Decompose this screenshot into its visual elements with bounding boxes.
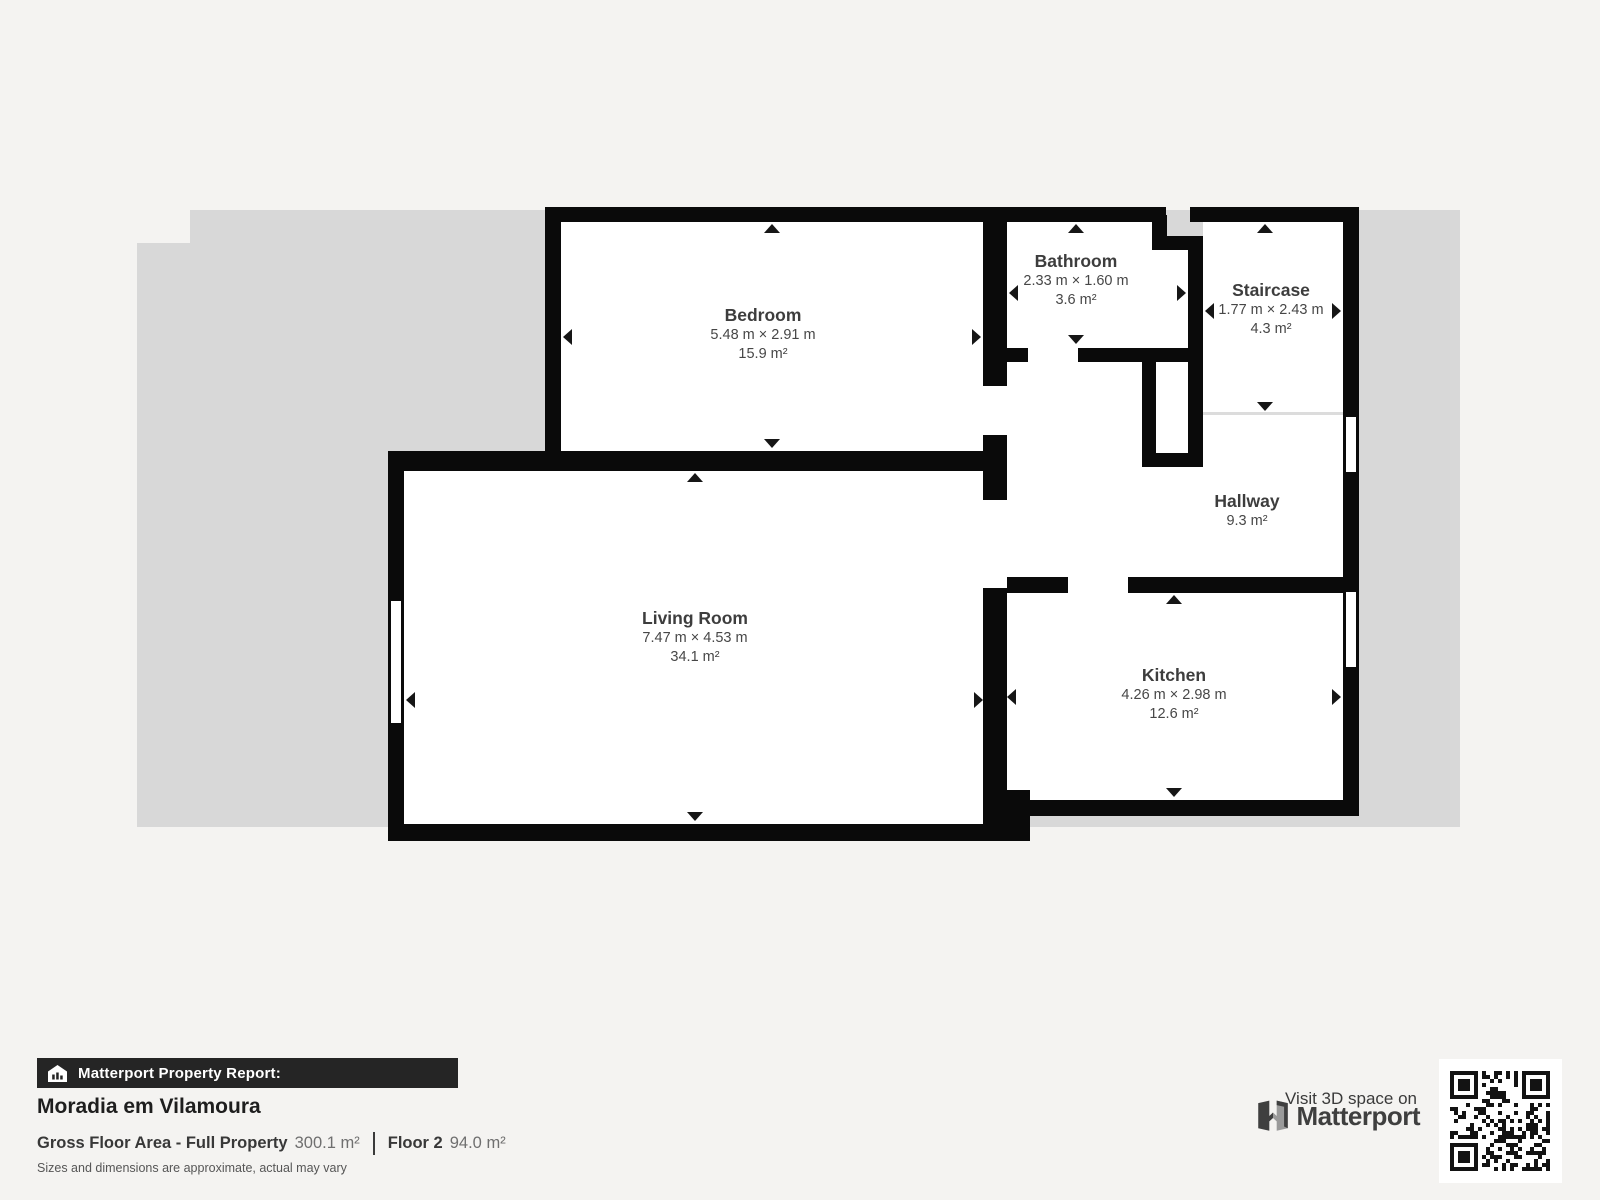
dimension-arrow-down-icon xyxy=(1068,335,1084,344)
room-name: Kitchen xyxy=(1121,665,1226,686)
dimension-arrow-left-icon xyxy=(406,692,415,708)
wall-kitchen-top xyxy=(983,577,1359,593)
room-hallway xyxy=(1005,362,1343,577)
room-dimensions: 7.47 m × 4.53 m xyxy=(642,629,748,648)
wall-bedroom-left xyxy=(545,207,561,471)
room-name: Staircase xyxy=(1218,280,1323,301)
dimension-arrow-down-icon xyxy=(1257,402,1273,411)
dimension-arrow-right-icon xyxy=(1332,689,1341,705)
door-bedroom xyxy=(983,386,1007,435)
dimension-arrow-right-icon xyxy=(972,329,981,345)
room-name: Bathroom xyxy=(1023,251,1128,272)
gross-floor-area-label: Gross Floor Area - Full Property xyxy=(37,1134,288,1153)
wall-living-bottom xyxy=(388,824,1030,841)
dimension-arrow-left-icon xyxy=(563,329,572,345)
label-kitchen: Kitchen 4.26 m × 2.98 m 12.6 m² xyxy=(1121,665,1226,724)
room-name: Bedroom xyxy=(710,305,815,326)
label-bedroom: Bedroom 5.48 m × 2.91 m 15.9 m² xyxy=(710,305,815,364)
dimension-arrow-down-icon xyxy=(1166,788,1182,797)
dimension-arrow-left-icon xyxy=(1007,689,1016,705)
room-area: 12.6 m² xyxy=(1121,705,1226,724)
staircase-hallway-boundary xyxy=(1203,412,1343,415)
wall-kitchen-bottom xyxy=(1007,800,1359,816)
room-dimensions: 2.33 m × 1.60 m xyxy=(1023,272,1128,291)
property-name: Moradia em Vilamoura xyxy=(37,1095,261,1119)
window-living-room xyxy=(391,601,401,723)
dimension-arrow-up-icon xyxy=(1068,224,1084,233)
wall-stair-shaft-left xyxy=(1142,362,1156,467)
matterport-wordmark: Matterport xyxy=(1296,1101,1420,1132)
label-bathroom: Bathroom 2.33 m × 1.60 m 3.6 m² xyxy=(1023,251,1128,310)
wall-bedroom-bathroom xyxy=(983,207,1007,362)
dimension-arrow-right-icon xyxy=(974,692,983,708)
room-area: 15.9 m² xyxy=(710,345,815,364)
dimension-arrow-down-icon xyxy=(764,439,780,448)
area-stats: Gross Floor Area - Full Property 300.1 m… xyxy=(37,1132,506,1155)
dimension-arrow-right-icon xyxy=(1177,285,1186,301)
door-kitchen xyxy=(1068,577,1128,593)
room-name: Living Room xyxy=(642,608,748,629)
disclaimer-text: Sizes and dimensions are approximate, ac… xyxy=(37,1161,347,1175)
wall-top-staircase xyxy=(1190,207,1359,222)
report-bar-label: Matterport Property Report: xyxy=(78,1065,281,1082)
wall-outer-right xyxy=(1343,207,1359,816)
wall-top-main xyxy=(545,207,1166,222)
room-area: 3.6 m² xyxy=(1023,291,1128,310)
matterport-mark-icon xyxy=(1258,1100,1288,1132)
stats-divider xyxy=(373,1132,375,1155)
room-area: 9.3 m² xyxy=(1214,512,1279,531)
label-staircase: Staircase 1.77 m × 2.43 m 4.3 m² xyxy=(1218,280,1323,339)
dimension-arrow-up-icon xyxy=(1257,224,1273,233)
dimension-arrow-left-icon xyxy=(1205,303,1214,319)
dimension-arrow-up-icon xyxy=(764,224,780,233)
exterior-notch xyxy=(1166,210,1190,236)
dimension-arrow-left-icon xyxy=(1009,285,1018,301)
room-area: 4.3 m² xyxy=(1218,320,1323,339)
door-bathroom xyxy=(1028,348,1078,362)
matterport-logo: Matterport xyxy=(1258,1100,1420,1132)
wall-hallway-top xyxy=(983,348,1203,362)
gross-floor-area-value: 300.1 m² xyxy=(295,1134,360,1153)
floor-label: Floor 2 xyxy=(388,1134,443,1153)
dimension-arrow-right-icon xyxy=(1332,303,1341,319)
window-kitchen xyxy=(1346,592,1356,667)
floor-area-value: 94.0 m² xyxy=(450,1134,506,1153)
room-dimensions: 5.48 m × 2.91 m xyxy=(710,326,815,345)
dimension-arrow-up-icon xyxy=(687,473,703,482)
door-living-hallway xyxy=(983,500,1007,588)
qr-code xyxy=(1439,1059,1562,1183)
room-dimensions: 1.77 m × 2.43 m xyxy=(1218,301,1323,320)
property-report-page: Bedroom 5.48 m × 2.91 m 15.9 m² Bathroom… xyxy=(0,0,1600,1200)
floor-silhouette-left xyxy=(137,243,190,827)
wall-living-top xyxy=(388,451,1005,471)
room-area: 34.1 m² xyxy=(642,648,748,667)
dimension-arrow-down-icon xyxy=(687,812,703,821)
house-report-icon xyxy=(48,1065,67,1082)
room-dimensions: 4.26 m × 2.98 m xyxy=(1121,686,1226,705)
room-name: Hallway xyxy=(1214,491,1279,512)
report-header-bar: Matterport Property Report: xyxy=(37,1058,458,1088)
label-living-room: Living Room 7.47 m × 4.53 m 34.1 m² xyxy=(642,608,748,667)
window-hallway xyxy=(1346,417,1356,472)
dimension-arrow-up-icon xyxy=(1166,595,1182,604)
wall-staircase-left xyxy=(1188,236,1203,467)
label-hallway: Hallway 9.3 m² xyxy=(1214,491,1279,531)
